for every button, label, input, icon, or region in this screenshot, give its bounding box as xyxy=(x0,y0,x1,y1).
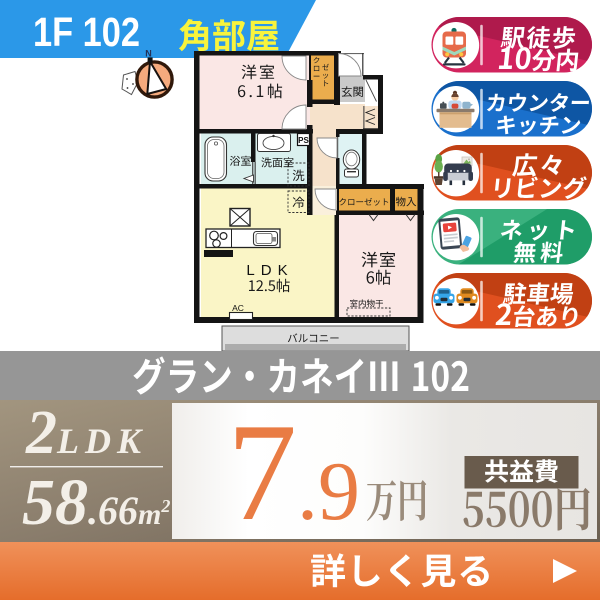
svg-text:LDK: LDK xyxy=(246,262,293,279)
svg-text:PS: PS xyxy=(298,136,309,145)
svg-text:N: N xyxy=(145,49,152,59)
svg-text:AC: AC xyxy=(232,303,244,313)
svg-text:1F 102: 1F 102 xyxy=(33,9,140,55)
